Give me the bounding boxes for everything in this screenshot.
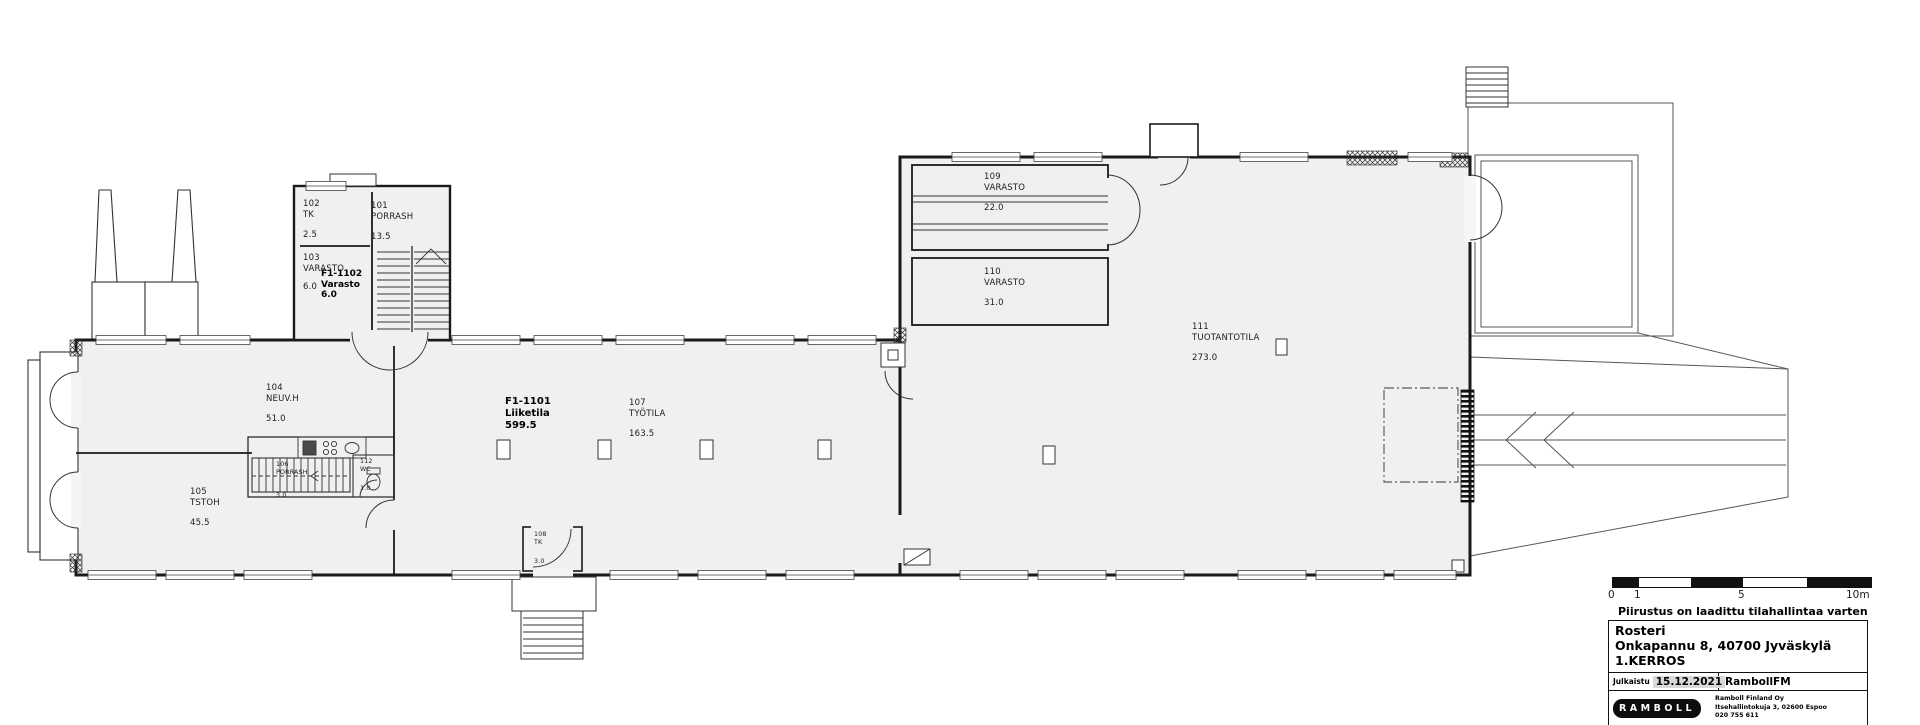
room-label-112: 112 WC 1.0 [360,458,373,493]
room-label-109: 109 VARASTO 22.0 [984,172,1025,214]
title-block: Rosteri Onkapannu 8, 40700 Jyväskylä 1.K… [1608,620,1868,725]
loading-ramp [1470,357,1788,556]
company-name: Ramboll Finland Oy [1715,695,1827,704]
room-label-105: 105 TSTOH 45.5 [190,487,220,529]
floor-name: 1.KERROS [1615,654,1861,669]
system-name: RambollFM [1719,676,1791,688]
room-label-106: 106 PORRASH 3.0 [276,461,308,500]
unit-label-f1-1101: F1-1101 Liiketila 599.5 [505,396,551,431]
room-label-107: 107 TYÖTILA 163.5 [629,398,665,440]
chimney-structures [92,190,198,339]
room-label-101: 101 PORRASH 13.5 [371,201,413,243]
published-label: Julkaistu [1613,677,1650,686]
scale-bar-labels: 0 1 5 10m [0,589,1920,603]
terrace-structure [1468,103,1788,369]
ramboll-logo: RAMBOLL [1613,699,1701,718]
drawing-note: Piirustus on laadittu tilahallintaa vart… [1618,605,1868,618]
entrance-porch-west [28,352,78,560]
building-outline [76,157,1470,575]
unit-label-f1-1102: F1-1102 Varasto 6.0 [321,269,362,301]
published-date: 15.12.2021 [1653,676,1725,688]
building-address: Onkapannu 8, 40700 Jyväskylä [1615,639,1861,654]
scale-bar [1612,577,1872,588]
title-block-company: RAMBOLL Ramboll Finland Oy Itsehallintok… [1609,690,1867,725]
floor-plan-page: 101 PORRASH 13.5 102 TK 2.5 103 VARASTO … [0,0,1920,725]
room-label-110: 110 VARASTO 31.0 [984,267,1025,309]
room-label-104: 104 NEUV.H 51.0 [266,383,299,425]
company-phone: 020 755 611 [1715,712,1827,721]
north-vestibule [1150,124,1198,157]
room-label-111: 111 TUOTANTOTILA 273.0 [1192,322,1260,364]
title-block-meta: Julkaistu 15.12.2021 RambollFM [1609,672,1867,690]
title-block-heading: Rosteri Onkapannu 8, 40700 Jyväskylä 1.K… [1609,621,1867,672]
company-address: Itsehallintokuja 3, 02600 Espoo [1715,704,1827,713]
room-label-102: 102 TK 2.5 [303,199,320,241]
roof-ladder [1466,67,1508,107]
room-label-108: 108 TK 3.0 [534,531,547,566]
building-name: Rosteri [1615,624,1861,639]
